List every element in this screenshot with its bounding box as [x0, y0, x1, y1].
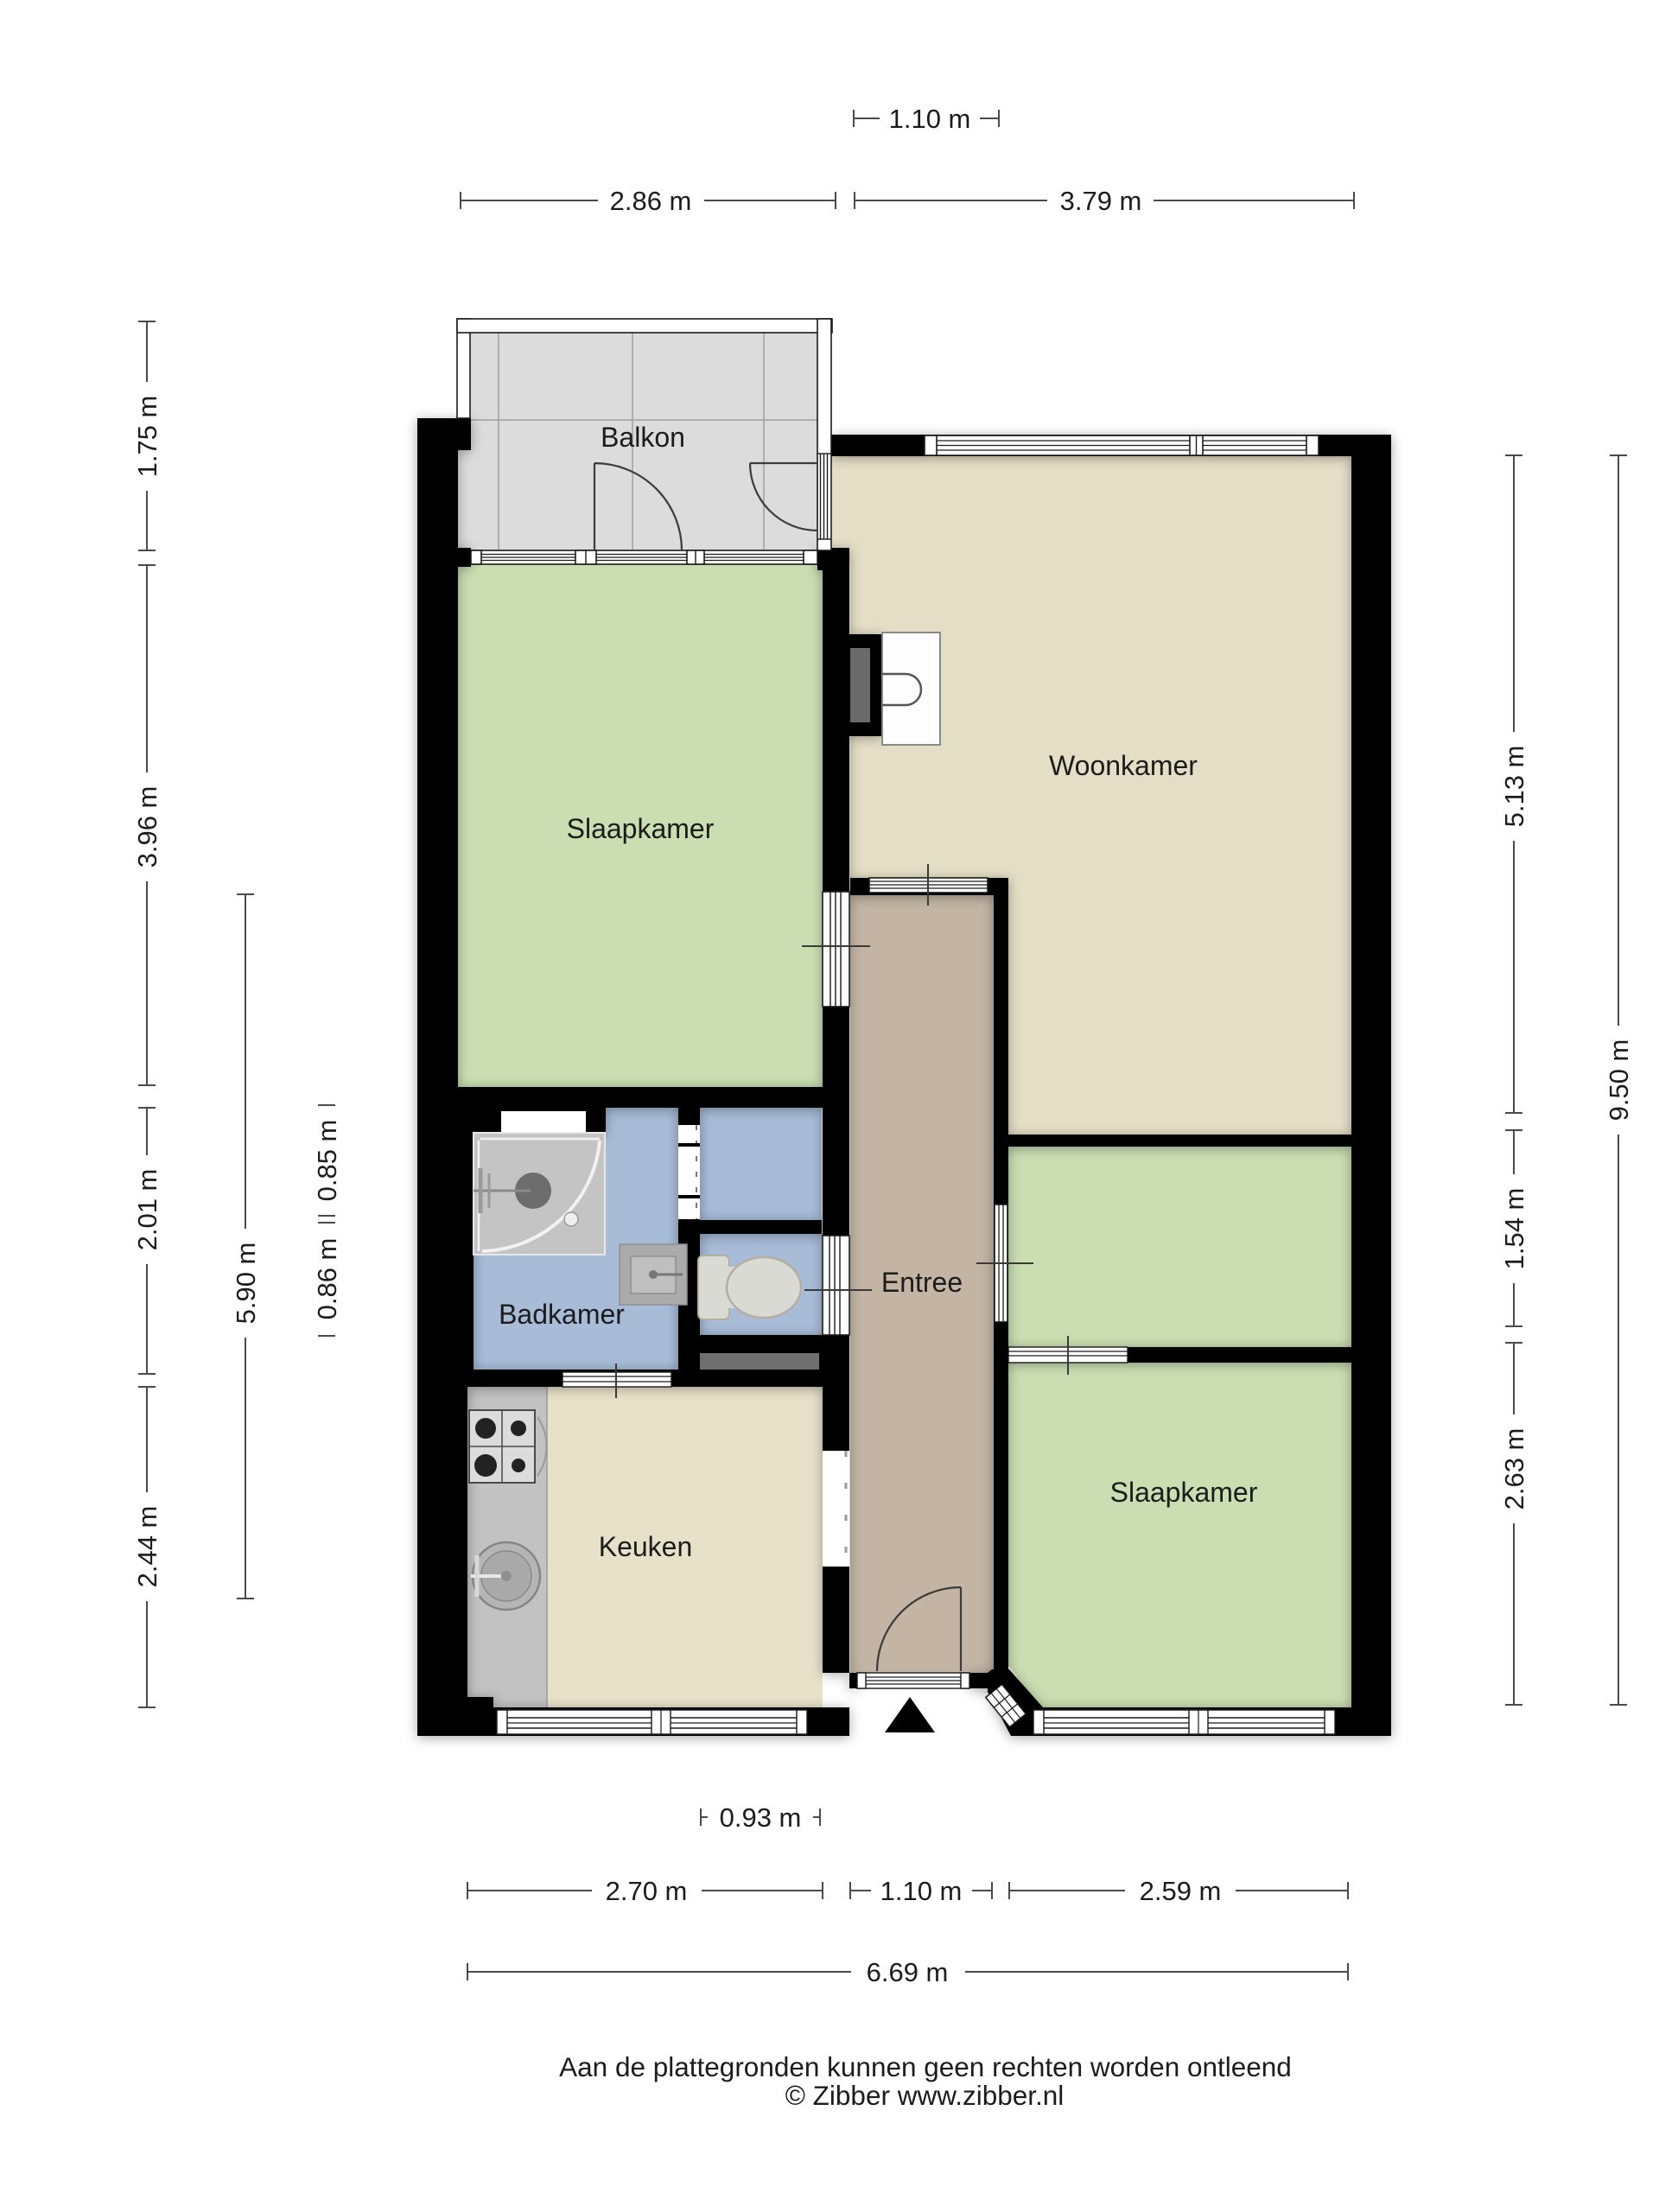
svg-text:5.13 m: 5.13 m: [1499, 746, 1529, 828]
svg-text:Entree: Entree: [881, 1267, 963, 1298]
svg-text:1.10 m: 1.10 m: [880, 1876, 963, 1906]
svg-text:9.50 m: 9.50 m: [1604, 1039, 1634, 1122]
svg-text:Slaapkamer: Slaapkamer: [1110, 1477, 1258, 1508]
svg-text:Keuken: Keuken: [599, 1531, 693, 1562]
svg-text:3.96 m: 3.96 m: [132, 786, 162, 868]
svg-text:2.63 m: 2.63 m: [1499, 1428, 1529, 1510]
svg-text:1.75 m: 1.75 m: [132, 396, 162, 478]
svg-text:2.44 m: 2.44 m: [132, 1506, 162, 1588]
svg-text:Aan de plattegronden kunnen ge: Aan de plattegronden kunnen geen rechten…: [559, 2051, 1292, 2082]
svg-text:3.79 m: 3.79 m: [1060, 186, 1142, 216]
svg-text:Badkamer: Badkamer: [499, 1299, 625, 1330]
svg-text:6.69 m: 6.69 m: [867, 1957, 949, 1987]
svg-text:© Zibber www.zibber.nl: © Zibber www.zibber.nl: [785, 2080, 1065, 2111]
svg-text:0.85 m: 0.85 m: [312, 1120, 342, 1202]
svg-text:2.59 m: 2.59 m: [1140, 1876, 1222, 1906]
svg-text:2.01 m: 2.01 m: [132, 1169, 162, 1251]
svg-text:0.93 m: 0.93 m: [720, 1802, 802, 1833]
svg-text:2.86 m: 2.86 m: [610, 186, 692, 216]
svg-text:2.70 m: 2.70 m: [606, 1876, 688, 1906]
svg-text:0.86 m: 0.86 m: [312, 1238, 342, 1320]
svg-text:Balkon: Balkon: [601, 422, 685, 453]
svg-text:Woonkamer: Woonkamer: [1049, 750, 1198, 781]
svg-text:Slaapkamer: Slaapkamer: [567, 813, 715, 844]
svg-text:5.90 m: 5.90 m: [231, 1243, 261, 1325]
svg-text:1.54 m: 1.54 m: [1499, 1188, 1529, 1270]
svg-text:1.10 m: 1.10 m: [889, 104, 971, 134]
